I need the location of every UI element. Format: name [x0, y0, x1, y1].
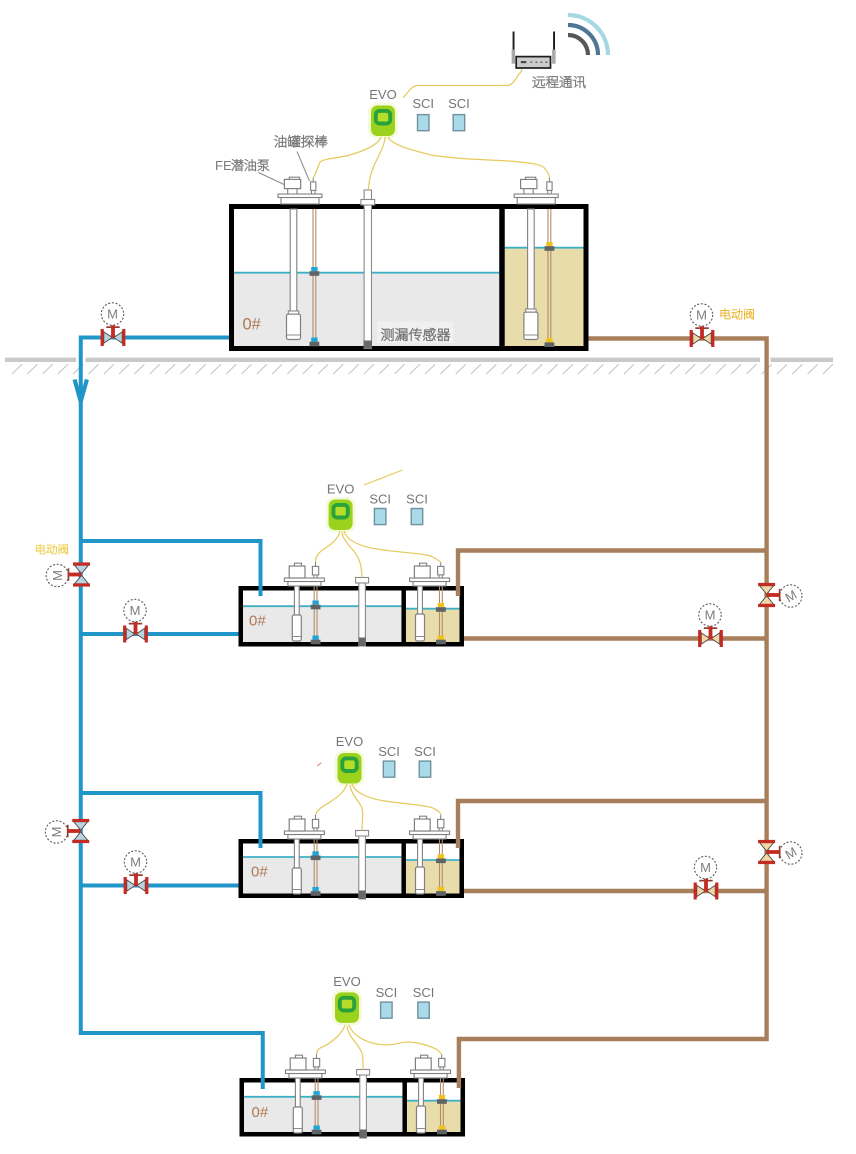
- svg-text:M: M: [49, 827, 64, 838]
- svg-text:0#: 0#: [243, 316, 262, 334]
- svg-text:M: M: [700, 860, 711, 875]
- svg-text:SCI: SCI: [412, 96, 434, 111]
- svg-text:M: M: [696, 308, 707, 323]
- svg-text:EVO: EVO: [369, 87, 396, 102]
- svg-text:M: M: [130, 603, 141, 618]
- svg-text:SCI: SCI: [369, 492, 391, 507]
- svg-text:SCI: SCI: [376, 985, 398, 1000]
- svg-text:M: M: [705, 608, 716, 623]
- svg-text:EVO: EVO: [327, 482, 354, 497]
- svg-text:EVO: EVO: [336, 734, 363, 749]
- svg-text:0#: 0#: [249, 613, 266, 630]
- svg-text:SCI: SCI: [448, 96, 470, 111]
- svg-text:M: M: [107, 307, 118, 322]
- svg-text:SCI: SCI: [406, 492, 428, 507]
- svg-text:FE: FE: [215, 158, 232, 173]
- svg-text:SCI: SCI: [414, 744, 436, 759]
- svg-text:M: M: [130, 855, 141, 870]
- svg-text:0#: 0#: [252, 1104, 269, 1121]
- svg-text:0#: 0#: [251, 864, 268, 881]
- svg-text:M: M: [50, 570, 65, 581]
- svg-text:SCI: SCI: [413, 985, 435, 1000]
- svg-text:EVO: EVO: [333, 974, 360, 989]
- svg-text:SCI: SCI: [378, 744, 400, 759]
